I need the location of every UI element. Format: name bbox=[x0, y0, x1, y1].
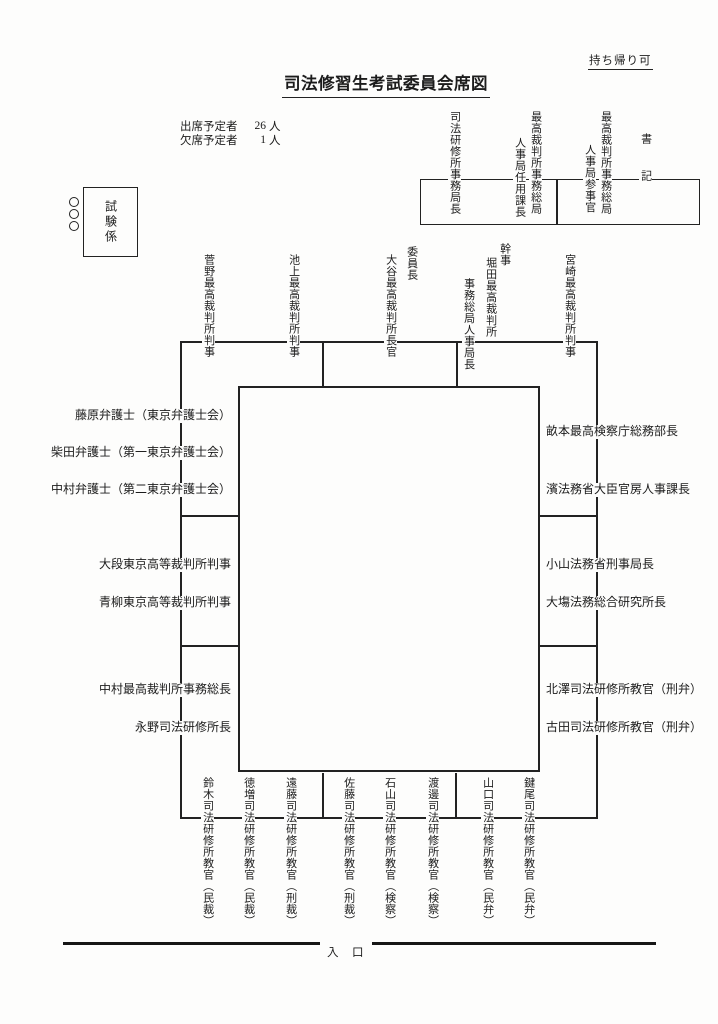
exam-staff-label: 試験係 bbox=[105, 200, 117, 245]
seat-right-5: 北澤司法研修所教官（刑弁） bbox=[544, 683, 704, 697]
secretary-role-label: 幹事 bbox=[498, 242, 511, 267]
exam-staff-box: 試験係 bbox=[83, 187, 138, 257]
clerk-seat-label: 司法研修所事務局長 bbox=[448, 110, 461, 216]
seat-bottom-4: 佐藤司法研修所教官（刑裁） bbox=[342, 776, 355, 928]
clerk-table-divider bbox=[556, 179, 558, 225]
seat-left-4: 大段東京高等裁判所判事 bbox=[97, 558, 233, 572]
seat-right-2: 濱法務省大臣官房人事課長 bbox=[544, 483, 692, 497]
seat-bottom-7: 山口司法研修所教官（民弁） bbox=[481, 776, 494, 928]
attendance-row: 出席予定者 26 人 bbox=[180, 119, 281, 133]
clerk-table-outline bbox=[420, 179, 700, 225]
right-band-divider bbox=[540, 515, 597, 517]
seat-bottom-1: 鈴木司法研修所教官（民裁） bbox=[201, 776, 214, 928]
seat-top-3-chairman: 大谷最高裁判所長官 bbox=[384, 253, 397, 359]
staff-seat-circle-icon bbox=[69, 209, 79, 219]
bottom-band-divider bbox=[455, 773, 457, 819]
entrance-wall-right bbox=[372, 942, 656, 945]
seat-bottom-5: 石山司法研修所教官（検察） bbox=[383, 776, 396, 928]
attendance-count: 1 bbox=[242, 134, 266, 146]
seat-right-6: 古田司法研修所教官（刑弁） bbox=[544, 721, 704, 735]
attendance-count: 26 bbox=[242, 120, 266, 132]
seat-top-4-secretary-cont: 事務総局人事局長 bbox=[462, 277, 475, 371]
clerk-role-label: 書記 bbox=[639, 132, 652, 208]
top-band-divider bbox=[322, 341, 324, 388]
attendance-row: 欠席予定者 1 人 bbox=[180, 133, 281, 147]
attendance-unit: 人 bbox=[269, 132, 281, 148]
main-table-inner-well bbox=[238, 386, 540, 772]
seat-bottom-6: 渡邊司法研修所教官（検察） bbox=[426, 776, 439, 928]
staff-seat-circle-icon bbox=[69, 197, 79, 207]
seat-bottom-8: 鍵尾司法研修所教官（民弁） bbox=[522, 776, 535, 928]
bottom-band-divider bbox=[322, 773, 324, 819]
seat-top-5: 宮崎最高裁判所判事 bbox=[563, 253, 576, 359]
seat-left-1: 藤原弁護士（東京弁護士会） bbox=[73, 409, 233, 423]
clerk-seat-label: 最高裁判所事務総局 bbox=[529, 110, 542, 216]
seat-top-2: 池上最高裁判所判事 bbox=[287, 253, 300, 359]
seat-right-4: 大塲法務総合研究所長 bbox=[544, 596, 668, 610]
clerk-seat-label: 最高裁判所事務総局 bbox=[599, 110, 612, 216]
seat-right-3: 小山法務省刑事局長 bbox=[544, 558, 656, 572]
attendance-label: 欠席予定者 bbox=[180, 132, 242, 148]
clerk-seat-label: 人事局参事官 bbox=[583, 143, 596, 214]
seat-bottom-3: 遠藤司法研修所教官（刑裁） bbox=[284, 776, 297, 928]
seat-left-5: 青柳東京高等裁判所判事 bbox=[97, 596, 233, 610]
takeout-note: 持ち帰り可 bbox=[588, 55, 653, 70]
seat-left-2: 柴田弁護士（第一東京弁護士会） bbox=[49, 446, 233, 460]
staff-seat-circle-icon bbox=[69, 221, 79, 231]
seat-right-1: 畝本最高検察庁総務部長 bbox=[544, 425, 680, 439]
seat-left-3: 中村弁護士（第二東京弁護士会） bbox=[49, 483, 233, 497]
seat-bottom-2: 徳増司法研修所教官（民裁） bbox=[242, 776, 255, 928]
seat-top-4-secretary: 堀田最高裁判所 bbox=[484, 256, 497, 339]
chairman-role-label: 委員長 bbox=[405, 245, 418, 282]
left-band-divider bbox=[181, 645, 239, 647]
seat-left-7: 永野司法研修所長 bbox=[133, 721, 233, 735]
seat-left-6: 中村最高裁判所事務総長 bbox=[97, 683, 233, 697]
entrance-label: 入 口 bbox=[327, 944, 365, 960]
entrance-wall-left bbox=[63, 942, 320, 945]
attendance-summary: 出席予定者 26 人 欠席予定者 1 人 bbox=[180, 119, 281, 147]
page-title: 司法修習生考試委員会席図 bbox=[282, 75, 490, 98]
clerk-seat-label: 人事局任用課長 bbox=[513, 136, 526, 219]
right-band-divider bbox=[540, 645, 597, 647]
top-band-divider bbox=[456, 341, 458, 388]
left-band-divider bbox=[181, 515, 239, 517]
seat-top-1: 菅野最高裁判所判事 bbox=[202, 253, 215, 359]
seating-chart-page: 持ち帰り可 司法修習生考試委員会席図 出席予定者 26 人 欠席予定者 1 人 … bbox=[0, 0, 718, 1024]
